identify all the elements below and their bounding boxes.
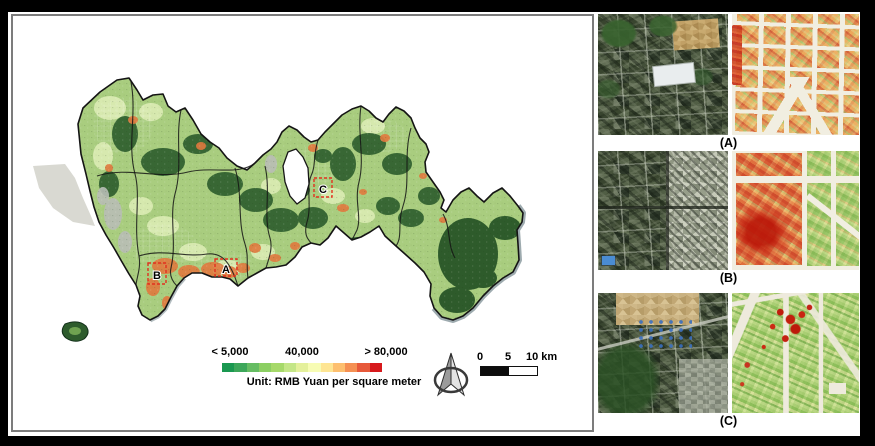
scale-bar-black-segment bbox=[481, 367, 509, 375]
figure-background: A B C < 5,000 40,000 > 80,000 bbox=[8, 12, 860, 436]
greenery-feature bbox=[598, 341, 660, 413]
marker-letter-b: B bbox=[153, 270, 161, 282]
scale-tick-10: 10 km bbox=[526, 351, 572, 363]
road-feature bbox=[598, 206, 728, 209]
panel-b-satellite-image bbox=[598, 151, 728, 270]
panel-c: (C) bbox=[598, 293, 859, 430]
panel-a-label: (A) bbox=[598, 136, 859, 150]
price-hotspot bbox=[737, 206, 790, 258]
legend-mid-label: 40,000 bbox=[270, 346, 334, 358]
road-feature bbox=[666, 151, 669, 270]
panel-c-price-map bbox=[732, 293, 859, 413]
panel-c-satellite-image bbox=[598, 293, 728, 413]
offshore-island bbox=[62, 322, 88, 341]
marker-letter-a: A bbox=[222, 264, 230, 276]
marker-letter-c: C bbox=[319, 184, 327, 196]
figure-frame: A B C < 5,000 40,000 > 80,000 bbox=[0, 0, 875, 446]
panel-a: (A) bbox=[598, 14, 859, 151]
legend-min-label: < 5,000 bbox=[198, 346, 262, 358]
built-area-feature bbox=[679, 359, 728, 413]
panel-b-label: (B) bbox=[598, 271, 859, 285]
panel-a-satellite-image bbox=[598, 14, 728, 135]
main-map-panel: A B C < 5,000 40,000 > 80,000 bbox=[11, 14, 594, 432]
legend-max-label: > 80,000 bbox=[354, 346, 418, 358]
legend-unit-label: Unit: RMB Yuan per square meter bbox=[232, 376, 436, 388]
no-data-block bbox=[829, 383, 846, 394]
street-feature bbox=[732, 176, 859, 183]
legend-colorbar bbox=[222, 363, 382, 372]
panel-a-price-map bbox=[732, 14, 859, 135]
panel-b-price-map bbox=[732, 151, 859, 270]
scale-bar-white-segment bbox=[509, 367, 537, 375]
scale-bar-segments bbox=[480, 366, 538, 376]
scale-bar: 0 5 10 km bbox=[460, 351, 572, 379]
building-feature bbox=[653, 63, 695, 86]
panel-b: (B) bbox=[598, 151, 859, 292]
scale-tick-0: 0 bbox=[472, 351, 488, 363]
panel-c-label: (C) bbox=[598, 414, 859, 428]
scale-tick-5: 5 bbox=[500, 351, 516, 363]
